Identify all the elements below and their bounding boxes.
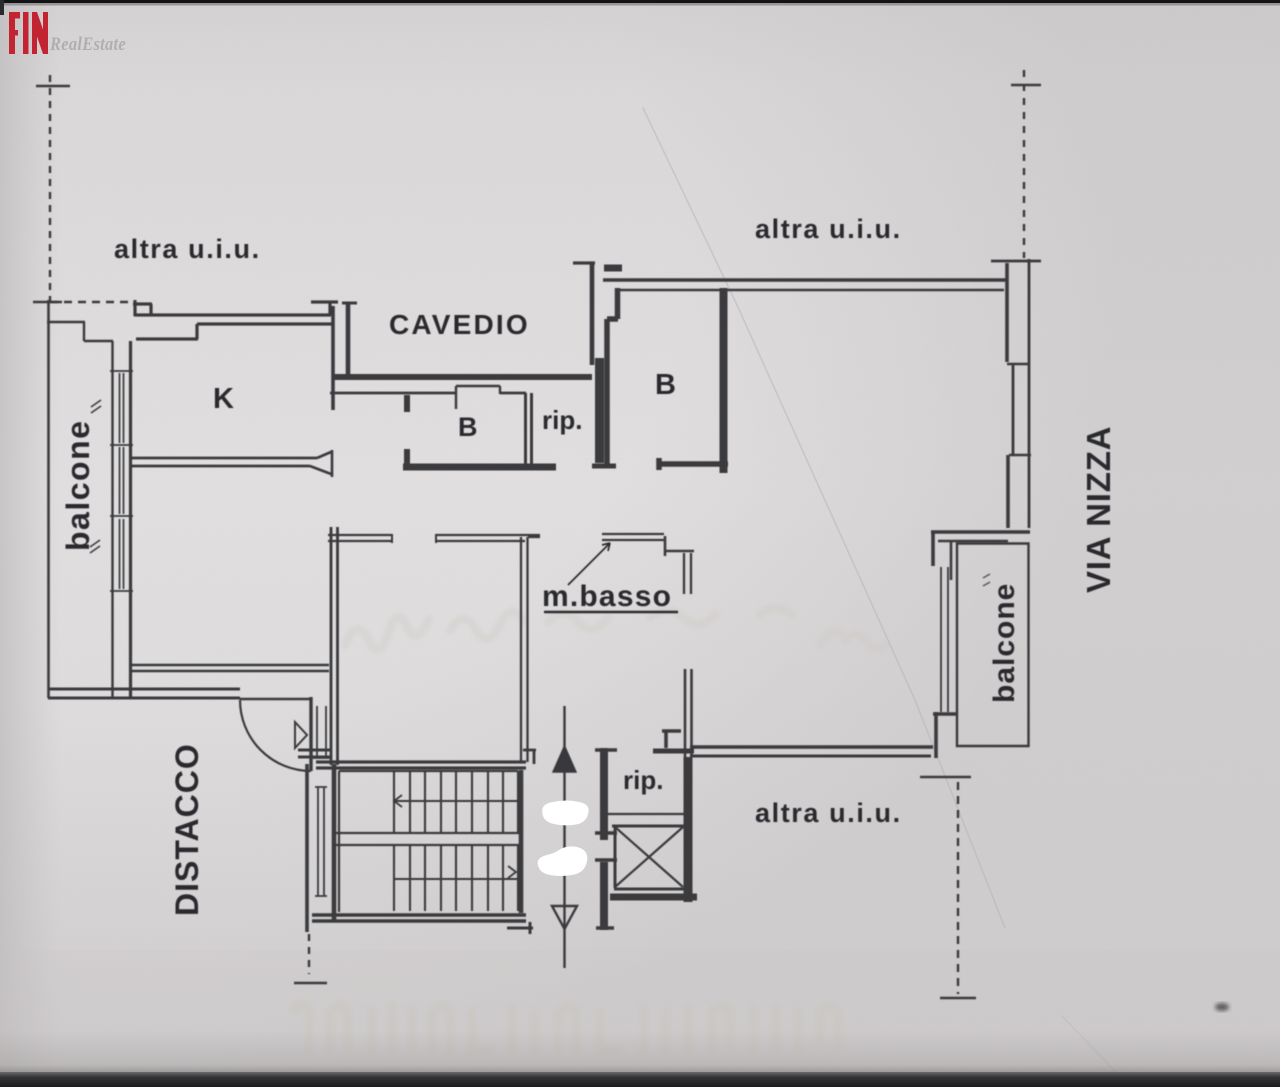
- svg-text:m.basso: m.basso: [542, 580, 672, 613]
- svg-text:B: B: [458, 412, 478, 442]
- svg-text:altra u.i.u.: altra u.i.u.: [755, 214, 902, 244]
- svg-text:DISTACCO: DISTACCO: [169, 743, 205, 916]
- svg-text:K: K: [213, 383, 234, 415]
- svg-text:altra u.i.u.: altra u.i.u.: [755, 798, 902, 828]
- svg-text:balcone: balcone: [60, 420, 96, 551]
- svg-text:B: B: [655, 369, 676, 401]
- svg-text:rip.: rip.: [542, 405, 582, 435]
- svg-text:balcone: balcone: [988, 583, 1021, 703]
- svg-text:CAVEDIO: CAVEDIO: [389, 309, 530, 340]
- svg-text:rip.: rip.: [623, 765, 663, 795]
- svg-text:RealEstate: RealEstate: [49, 35, 126, 55]
- svg-text:altra u.i.u.: altra u.i.u.: [114, 234, 261, 264]
- svg-text:VIA NIZZA: VIA NIZZA: [1080, 426, 1117, 593]
